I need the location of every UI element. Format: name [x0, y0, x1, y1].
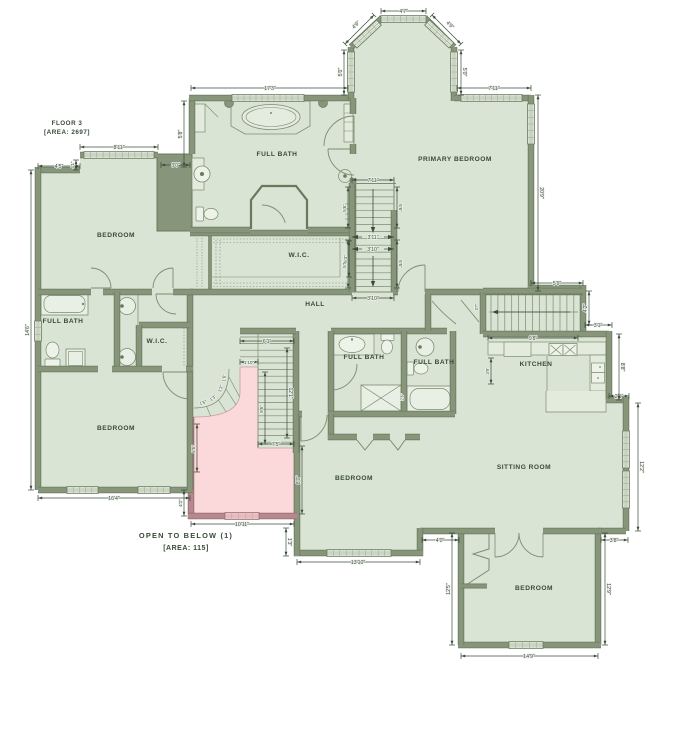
svg-text:3'10": 3'10" — [367, 296, 379, 302]
svg-text:3'11": 3'11" — [367, 235, 378, 241]
svg-text:3'9": 3'9" — [485, 367, 490, 374]
svg-text:16'4": 16'4" — [108, 496, 120, 502]
svg-text:HALL: HALL — [305, 301, 325, 308]
svg-text:6'1": 6'1" — [263, 339, 272, 345]
svg-text:8'11": 8'11" — [113, 145, 124, 151]
svg-text:[AREA: 115]: [AREA: 115] — [163, 545, 209, 552]
svg-text:FLOOR 3: FLOOR 3 — [52, 120, 83, 127]
svg-text:FULL BATH: FULL BATH — [414, 359, 455, 366]
svg-text:12'1": 12'1" — [287, 387, 293, 398]
svg-text:5'5": 5'5" — [398, 260, 403, 268]
svg-text:OPEN TO BELOW (1): OPEN TO BELOW (1) — [139, 531, 233, 540]
svg-text:12'5": 12'5" — [446, 583, 452, 595]
svg-text:8'0": 8'0" — [296, 476, 302, 485]
svg-text:W.I.C.: W.I.C. — [289, 252, 310, 259]
svg-text:7'5": 7'5" — [272, 442, 281, 448]
svg-text:10'11": 10'11" — [235, 522, 249, 528]
svg-text:2'6": 2'6" — [400, 393, 405, 400]
svg-text:3'7": 3'7" — [474, 303, 479, 310]
svg-text:3'10": 3'10" — [367, 247, 379, 253]
svg-text:1'3": 1'3" — [286, 538, 292, 547]
svg-text:1'10": 1'10" — [244, 360, 255, 365]
svg-text:FULL BATH: FULL BATH — [257, 151, 298, 158]
svg-text:20'9": 20'9" — [538, 187, 544, 199]
svg-text:7'11": 7'11" — [367, 178, 378, 184]
svg-text:SITTING ROOM: SITTING ROOM — [497, 464, 551, 471]
svg-text:5'6": 5'6" — [398, 204, 403, 212]
svg-text:KITCHEN: KITCHEN — [520, 361, 553, 368]
svg-text:3'0": 3'0" — [171, 163, 180, 169]
svg-text:[AREA: 2697]: [AREA: 2697] — [44, 129, 90, 136]
svg-text:13'10": 13'10" — [351, 560, 366, 566]
svg-text:14'9": 14'9" — [523, 654, 535, 660]
svg-text:8'8": 8'8" — [619, 363, 625, 372]
svg-text:1'6": 1'6" — [221, 374, 227, 382]
svg-text:5'0": 5'0" — [461, 68, 467, 77]
svg-text:4'0": 4'0" — [436, 538, 445, 544]
svg-text:14'6": 14'6" — [25, 324, 31, 336]
svg-text:5'9": 5'9" — [553, 281, 562, 287]
svg-text:9'8": 9'8" — [529, 336, 538, 342]
svg-text:4'5": 4'5" — [55, 164, 64, 170]
svg-text:17'3": 17'3" — [264, 86, 276, 92]
svg-text:3'1": 3'1" — [594, 323, 603, 329]
svg-text:4'7": 4'7" — [399, 9, 408, 15]
svg-text:4'2": 4'2" — [583, 304, 589, 313]
svg-text:5'8": 5'8" — [178, 130, 184, 139]
svg-text:12'2": 12'2" — [638, 461, 644, 473]
svg-text:BEDROOM: BEDROOM — [335, 475, 373, 482]
svg-text:5'6": 5'6" — [342, 204, 347, 212]
svg-text:3'8": 3'8" — [610, 538, 619, 544]
svg-text:9'6": 9'6" — [259, 405, 264, 413]
svg-text:7'11": 7'11" — [488, 86, 499, 92]
svg-text:4'2": 4'2" — [178, 499, 183, 507]
svg-text:8'6": 8'6" — [191, 445, 196, 453]
svg-text:PRIMARY BEDROOM: PRIMARY BEDROOM — [418, 156, 492, 163]
svg-text:FULL BATH: FULL BATH — [344, 354, 385, 361]
svg-text:BEDROOM: BEDROOM — [515, 585, 553, 592]
svg-text:5'0": 5'0" — [338, 68, 344, 77]
svg-text:12'9": 12'9" — [605, 583, 611, 595]
svg-text:4'1": 4'1" — [70, 161, 75, 168]
svg-text:FULL BATH: FULL BATH — [43, 318, 84, 325]
svg-text:W.I.C.: W.I.C. — [147, 338, 168, 345]
svg-text:BEDROOM: BEDROOM — [97, 425, 135, 432]
svg-text:5'4": 5'4" — [343, 255, 348, 263]
svg-text:BEDROOM: BEDROOM — [97, 232, 135, 239]
